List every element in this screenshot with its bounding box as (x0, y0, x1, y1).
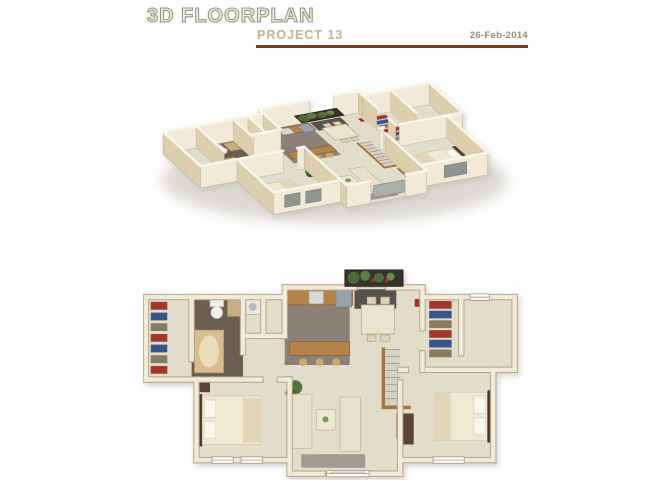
date-label: 26-Feb-2014 (470, 30, 528, 41)
floorplan-sheet: 3D FLOORPLAN PROJECT 13 26-Feb-2014 (0, 0, 670, 480)
page-title: 3D FLOORPLAN (147, 5, 315, 28)
header-rule (256, 45, 528, 48)
isometric-floorplan-svg (140, 56, 515, 264)
project-subtitle: PROJECT 13 (257, 28, 343, 42)
top-down-floorplan-svg (143, 266, 529, 479)
isometric-floorplan-render (140, 56, 515, 264)
top-down-floorplan-render (143, 266, 529, 479)
